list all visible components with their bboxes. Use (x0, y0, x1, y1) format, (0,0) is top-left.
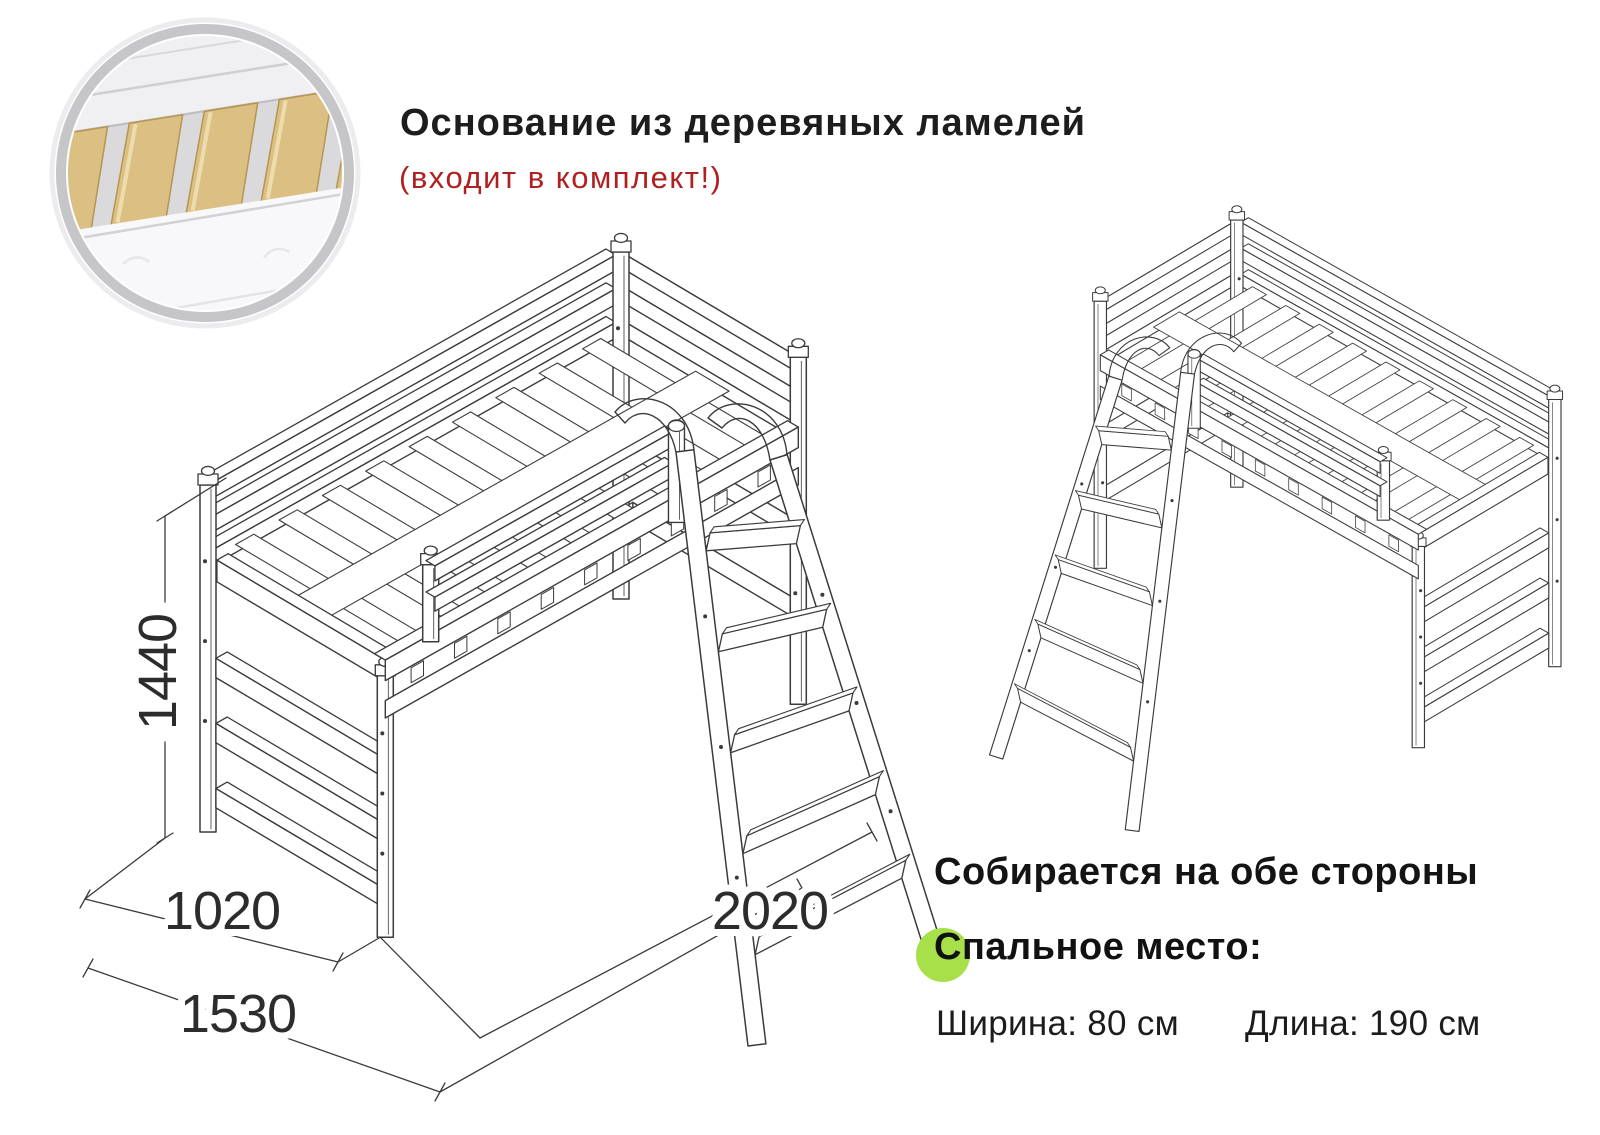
sleeping-place-block: Спальное место: (916, 926, 1244, 969)
sleeping-length-spec: Длина: 190 см (1245, 1004, 1481, 1044)
both-sides-note: Собирается на обе стороны (934, 851, 1478, 894)
dim-height-label: 1440 (128, 614, 188, 730)
loft-bed-right-drawing (990, 206, 1563, 832)
sleeping-width-spec: Ширина: 80 см (936, 1004, 1179, 1044)
included-note: (входит в комплект!) (399, 160, 722, 196)
sleeping-specs: Ширина: 80 см Длина: 190 см (936, 1004, 1481, 1044)
product-diagram-page: 1440 1020 1530 2020 Основание из деревян… (0, 0, 1600, 1135)
dim-width-label: 1020 (164, 881, 280, 941)
dim-depth-label: 1530 (180, 984, 296, 1044)
page-title: Основание из деревяных ламелей (400, 102, 1086, 145)
diagram-canvas: 1440 1020 1530 2020 (0, 0, 1600, 1135)
loft-bed-left-drawing (198, 233, 942, 1046)
slats-photo-inset (0, 4, 445, 377)
dim-length-label: 2020 (712, 881, 828, 941)
sleeping-place-heading: Спальное место: (934, 926, 1262, 969)
